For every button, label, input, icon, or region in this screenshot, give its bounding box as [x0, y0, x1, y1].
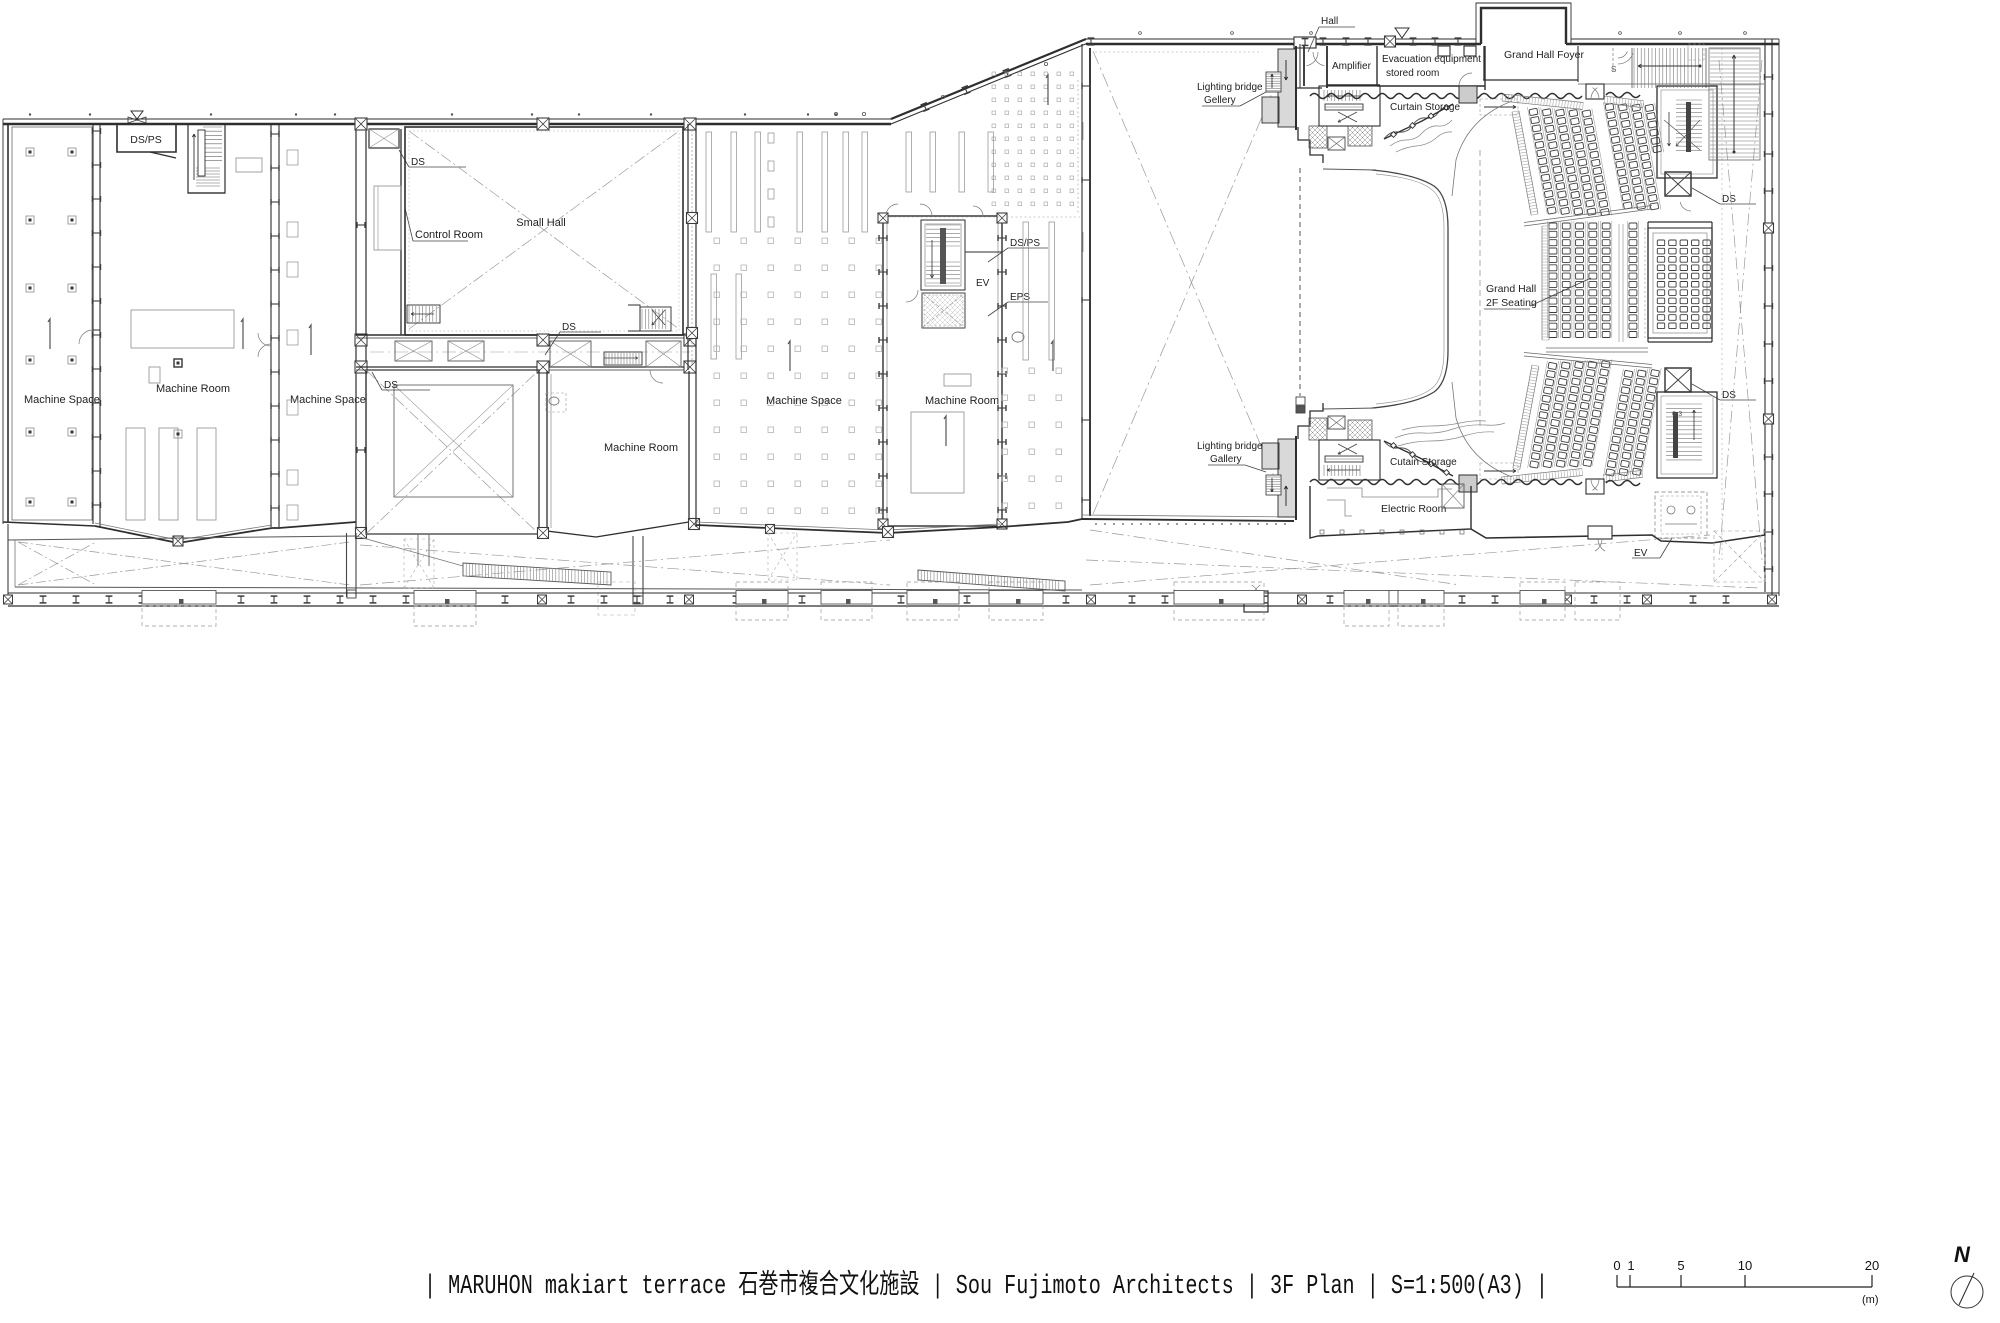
svg-text:Machine Room: Machine Room: [156, 383, 230, 395]
svg-text:EV: EV: [1634, 548, 1648, 559]
svg-text:Grand Hall: Grand Hall: [1486, 283, 1536, 295]
svg-text:Gellery: Gellery: [1204, 95, 1236, 106]
svg-text:DS: DS: [411, 157, 425, 168]
svg-text:| MARUHON makiart terrace 石巻市複: | MARUHON makiart terrace 石巻市複合文化施設 | So…: [424, 1269, 1548, 1302]
svg-text:Lighting bridge: Lighting bridge: [1197, 82, 1263, 93]
svg-text:Amplifier: Amplifier: [1332, 61, 1372, 72]
svg-text:Cutain Storage: Cutain Storage: [1390, 457, 1457, 468]
svg-text:5: 5: [1677, 1258, 1684, 1273]
svg-text:EPS: EPS: [1010, 292, 1030, 303]
svg-text:DS: DS: [1722, 390, 1736, 401]
svg-text:(m): (m): [1862, 1294, 1879, 1306]
svg-text:Grand Hall Foyer: Grand Hall Foyer: [1504, 49, 1584, 61]
svg-text:Control Room: Control Room: [415, 229, 483, 241]
svg-text:20: 20: [1865, 1258, 1879, 1273]
svg-text:2F Seating: 2F Seating: [1486, 297, 1537, 309]
svg-text:DS: DS: [384, 380, 398, 391]
svg-text:DS: DS: [1722, 194, 1736, 205]
svg-text:EV: EV: [976, 278, 990, 289]
svg-text:S: S: [1611, 65, 1616, 74]
svg-text:Small Hall: Small Hall: [516, 217, 566, 229]
svg-text:DS/PS: DS/PS: [1010, 238, 1040, 249]
svg-text:Gallery: Gallery: [1210, 454, 1242, 465]
svg-text:Curtain Storage: Curtain Storage: [1390, 102, 1460, 113]
svg-text:Machine Room: Machine Room: [925, 395, 999, 407]
svg-text:6-3: 6-3: [1672, 411, 1682, 418]
svg-text:Machine Space: Machine Space: [24, 394, 100, 406]
svg-text:10: 10: [1738, 1258, 1752, 1273]
svg-text:Machine Space: Machine Space: [290, 394, 366, 406]
svg-text:DS/PS: DS/PS: [130, 134, 162, 146]
svg-text:DS: DS: [562, 322, 576, 333]
svg-text:Electric Room: Electric Room: [1381, 503, 1447, 515]
svg-text:Lighting bridge: Lighting bridge: [1197, 441, 1263, 452]
svg-text:1: 1: [1627, 1258, 1634, 1273]
svg-text:Machine Space: Machine Space: [766, 395, 842, 407]
svg-text:0: 0: [1613, 1258, 1620, 1273]
svg-text:Machine Room: Machine Room: [604, 442, 678, 454]
svg-text:Evacuation equipment: Evacuation equipment: [1382, 54, 1481, 65]
svg-text:Hall: Hall: [1321, 16, 1338, 27]
svg-text:stored room: stored room: [1386, 68, 1439, 79]
svg-text:N: N: [1954, 1242, 1971, 1267]
